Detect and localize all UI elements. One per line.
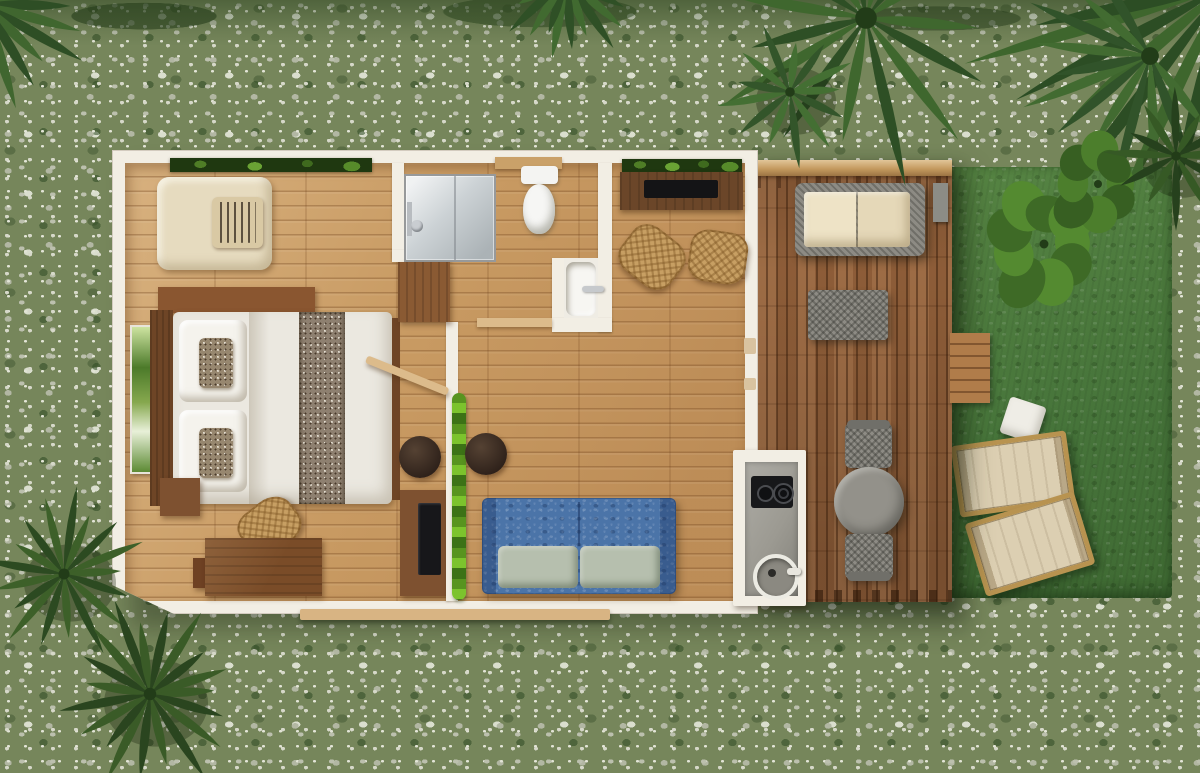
bathroom-cabinet [398, 262, 450, 322]
nightstand [160, 478, 200, 516]
sink-alcove-wall-bottom [552, 318, 612, 332]
bed-head-shelf [158, 287, 315, 313]
bed-runner [299, 312, 345, 504]
sliding-door-handle-2 [744, 378, 756, 390]
shower-glass-seam [454, 176, 456, 260]
burner-large [773, 483, 794, 504]
sofa-arm-right [660, 498, 676, 594]
dining-table [834, 467, 904, 537]
shower [404, 174, 496, 262]
shower-head [411, 220, 423, 232]
dining-chair-bottom-back [847, 572, 891, 581]
living-side-table [465, 433, 507, 475]
living-wicker-chair-2 [686, 227, 751, 287]
sink-faucet [787, 568, 801, 575]
sliding-door-handle-1 [744, 338, 756, 354]
deck-side-step [950, 333, 990, 403]
shower-pipe [407, 202, 412, 236]
armchair-pillow [212, 197, 263, 248]
bed-cushion-2 [199, 428, 233, 478]
top-foliage-band [0, 0, 1200, 46]
bathroom-wall-right [598, 163, 612, 332]
tv-screen [418, 503, 441, 575]
bathroom-wall-left [392, 163, 404, 258]
outdoor-sofa-cushion [804, 192, 910, 247]
cooktop [751, 476, 793, 508]
blue-sofa [482, 498, 676, 594]
sliding-door-track [477, 318, 552, 327]
living-room-window [622, 159, 742, 172]
kitchen-counter [745, 462, 798, 596]
entry-step [300, 609, 610, 620]
sofa-back-seam [578, 502, 580, 546]
kitchen-sink [753, 554, 799, 600]
burner-small [757, 485, 774, 502]
sofa-arm-left [482, 498, 496, 594]
dining-chair-top [845, 423, 892, 468]
sink-drain [768, 569, 776, 577]
kitchenette [733, 450, 806, 606]
bedroom-window [170, 158, 372, 172]
bed-cushion-1 [199, 338, 233, 388]
sofa-cushion-left [498, 546, 578, 588]
bedroom-side-table [399, 436, 441, 478]
bungalow-house [112, 150, 758, 614]
bed-headboard [150, 310, 173, 506]
sink-alcove-wall-left [552, 258, 564, 320]
basin-faucet [582, 286, 604, 292]
toilet-tank [521, 166, 558, 184]
double-bed [173, 312, 392, 504]
duvet-fold [249, 312, 299, 504]
dining-chair-top-back [847, 420, 890, 429]
floor-plan-scene [0, 0, 1200, 773]
pergola-beam [758, 160, 952, 176]
sofa-cushion-right [580, 546, 660, 588]
tall-plant [452, 393, 466, 600]
bedroom-desk [205, 538, 322, 596]
outdoor-sofa [795, 183, 925, 256]
gray-wall-panel [933, 183, 948, 222]
toilet-bowl [523, 184, 555, 234]
bed-foot-frame [392, 318, 400, 500]
console-slab [644, 180, 718, 198]
coffee-table [808, 290, 888, 340]
